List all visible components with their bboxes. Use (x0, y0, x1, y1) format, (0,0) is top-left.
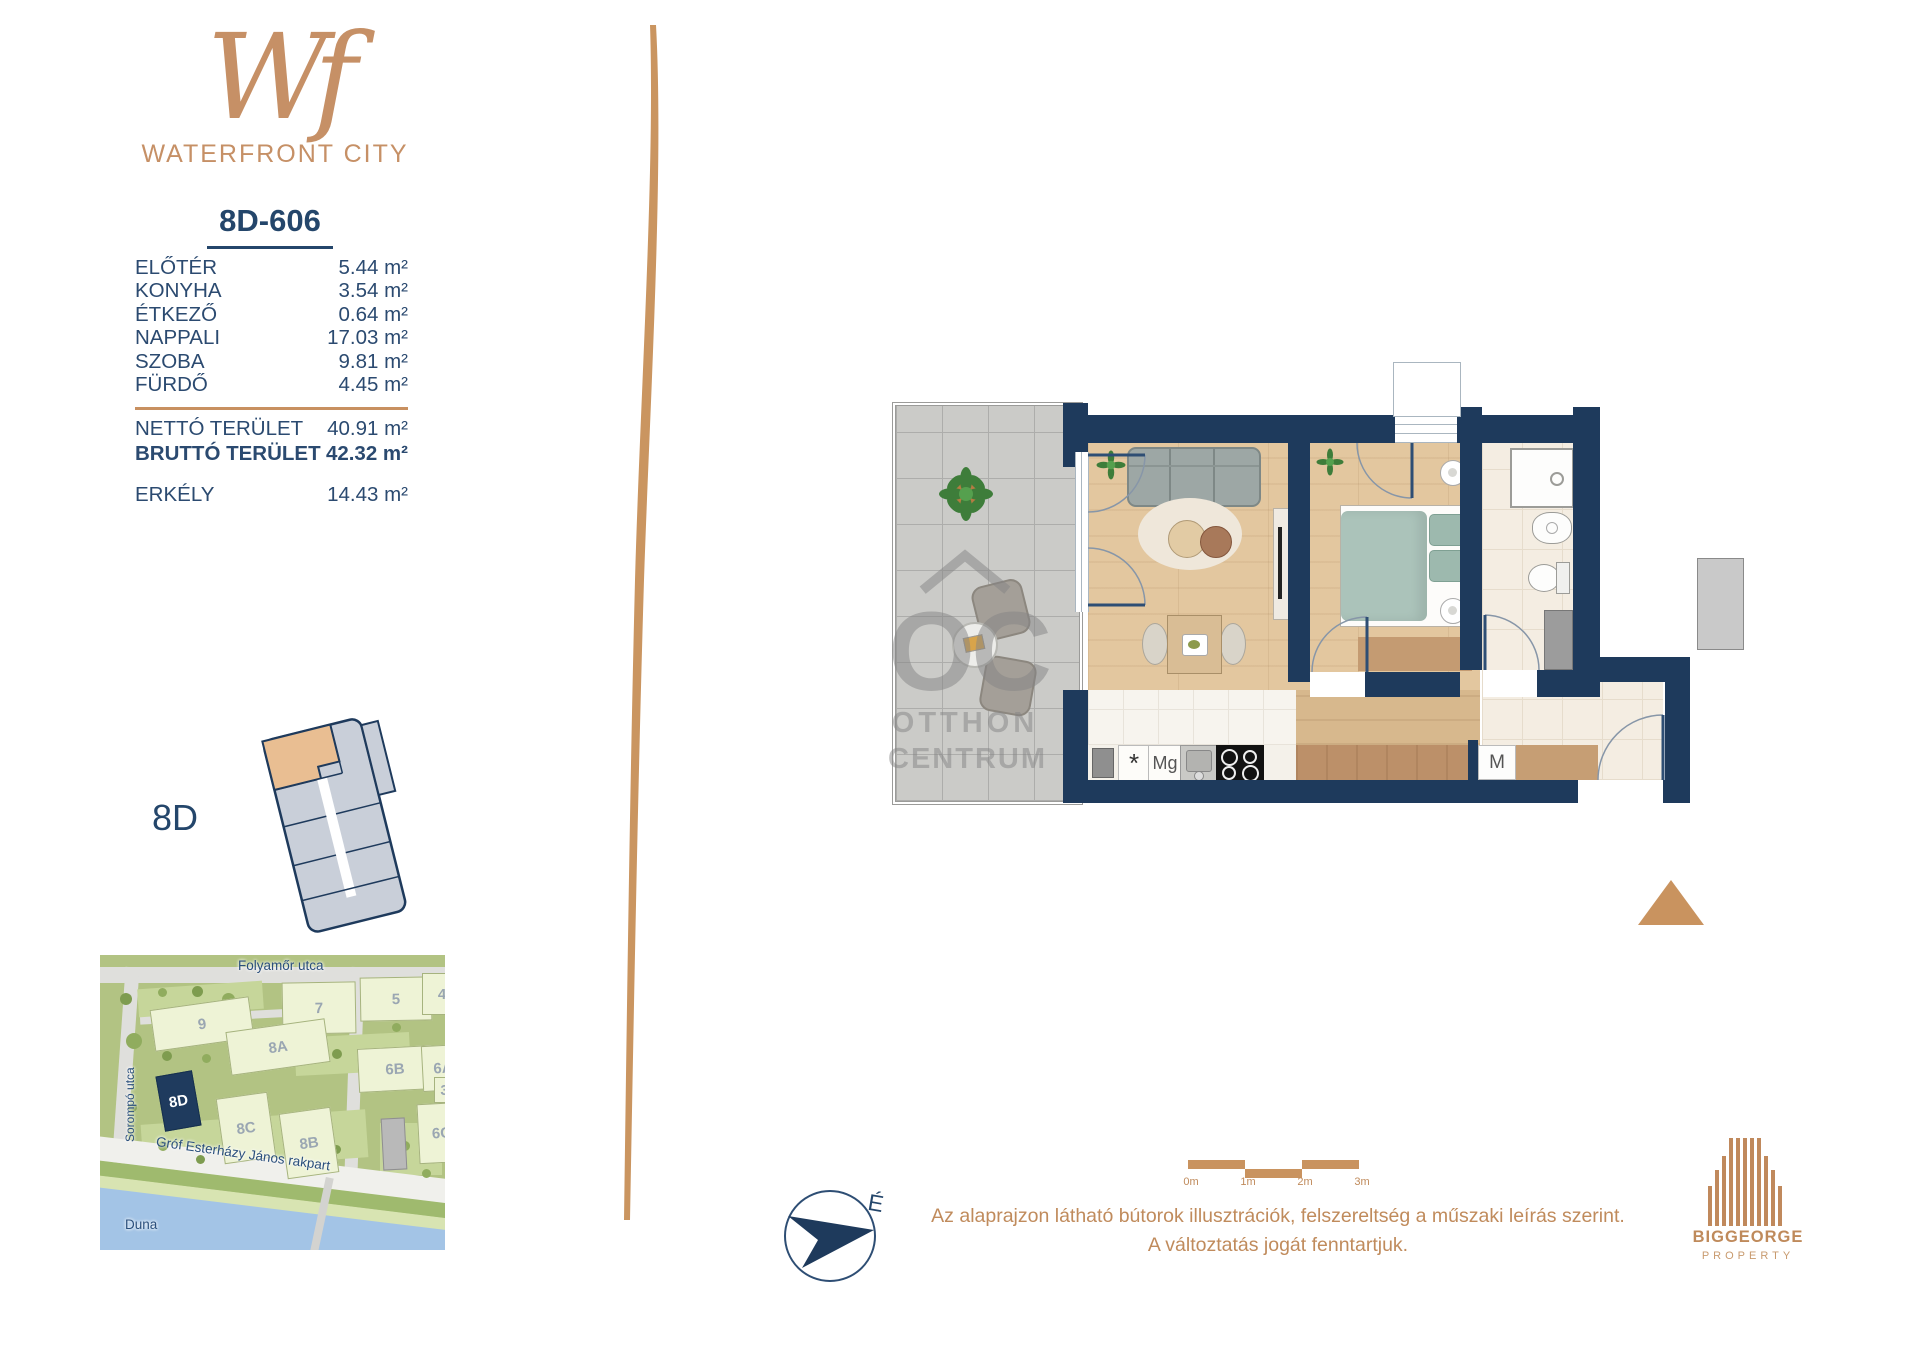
cooktop (1216, 745, 1264, 780)
dining-table (1167, 615, 1222, 674)
room-area: 0.64 m² (339, 303, 409, 327)
scale-bar: 0m 1m 2m 3m (1188, 1160, 1364, 1196)
wall-stub (1468, 740, 1478, 780)
gross-label: BRUTTÓ TERÜLET (135, 442, 321, 466)
balcony-row: ERKÉLY 14.43 m² (135, 483, 408, 506)
summary-divider (135, 407, 408, 410)
otthon-centrum-watermark: OC OTTHON CENTRUM (888, 545, 1042, 776)
biggeorge-building-icon (1702, 1128, 1794, 1228)
room-row: NAPPALI 17.03 m² (135, 326, 408, 349)
bedroom-window (1395, 415, 1457, 443)
net-area-row: NETTÓ TERÜLET 40.91 m² (135, 417, 408, 440)
wall-bottom (1063, 780, 1578, 803)
scale-tick: 2m (1291, 1176, 1319, 1188)
balcony-value: 14.43 m² (327, 483, 408, 507)
room-area: 17.03 m² (327, 326, 408, 350)
bathroom-sink (1532, 512, 1572, 544)
hall-counter (1516, 745, 1598, 780)
floor-hall (1296, 690, 1480, 745)
wall-bedroom-bottom (1365, 672, 1460, 697)
kitchen-sink (1180, 745, 1218, 782)
room-label: SZOBA (135, 350, 205, 374)
plant-icon (938, 466, 994, 522)
room-label: ELŐTÉR (135, 256, 217, 280)
floorplan-datasheet: Wf WATERFRONT CITY 8D-606 ELŐTÉR 5.44 m²… (0, 0, 1920, 1357)
scale-tick: 3m (1348, 1176, 1376, 1188)
net-value: 40.91 m² (327, 417, 408, 441)
disclaimer: Az alaprajzon látható bútorok illusztrác… (898, 1202, 1658, 1260)
street-top: Folyamőr utca (238, 958, 408, 973)
terrace-sliding-door (1075, 452, 1089, 612)
room-row: SZOBA 9.81 m² (135, 350, 408, 373)
shower (1510, 448, 1574, 508)
room-label: NAPPALI (135, 326, 220, 350)
site-map: 9 7 5 4 8A 6B 6A 8D 8C 8B 6C 3C Folyamőr… (100, 955, 445, 1250)
floor-kitchen (1088, 690, 1296, 745)
room-area: 5.44 m² (339, 256, 409, 280)
wall-bath-bottom (1537, 670, 1600, 697)
plant-icon (1096, 450, 1126, 480)
wardrobe (1358, 637, 1472, 671)
compass-north-label: É (866, 1189, 886, 1218)
watermark-line1: OTTHON (888, 707, 1042, 740)
building-label: 8D (152, 797, 198, 839)
room-row: ÉTKEZŐ 0.64 m² (135, 303, 408, 326)
room-label: FÜRDŐ (135, 373, 208, 397)
map-block: 6C (416, 1102, 445, 1164)
dining-chair (1220, 623, 1246, 665)
room-area: 4.45 m² (339, 373, 409, 397)
kitchen-counter (1296, 745, 1474, 780)
ribbon-divider (600, 20, 680, 1230)
room-row: FÜRDŐ 4.45 m² (135, 373, 408, 396)
room-row: KONYHA 3.54 m² (135, 279, 408, 302)
building-outline-plan (260, 710, 430, 945)
side-table (1200, 526, 1232, 558)
scale-tick: 1m (1234, 1176, 1262, 1188)
gross-area-row: BRUTTÓ TERÜLET 42.32 m² (135, 442, 408, 465)
room-row: ELŐTÉR 5.44 m² (135, 256, 408, 279)
tv-unit (1273, 508, 1289, 620)
developer-tagline: PROPERTY (1683, 1250, 1813, 1262)
brand-monogram: Wf (185, 8, 365, 146)
wall-living-bedroom (1288, 443, 1310, 682)
brand-name: WATERFRONT CITY (135, 140, 415, 169)
balcony-label: ERKÉLY (135, 483, 214, 507)
bedroom-window-leaf (1393, 362, 1461, 417)
wall-bottom-corner (1663, 780, 1690, 803)
map-block: 4 (422, 973, 445, 1015)
wall-left-bottom (1063, 690, 1088, 803)
watermark-line2: CENTRUM (888, 743, 1042, 776)
shaft (1544, 610, 1573, 670)
kitchen-shaft (1092, 748, 1114, 778)
room-label: KONYHA (135, 279, 222, 303)
dining-chair (1142, 623, 1168, 665)
wall-top-left (1063, 415, 1395, 443)
unit-id-wrap: 8D-606 (150, 203, 390, 249)
wall-extension-top (1600, 657, 1665, 682)
street-left: Sorompó utca (123, 1032, 137, 1142)
developer-logo: BIGGEORGE PROPERTY (1683, 1128, 1813, 1262)
room-area: 9.81 m² (339, 350, 409, 374)
map-grey-building (381, 1117, 408, 1170)
house-icon (915, 545, 1015, 595)
watermark-monogram: OC (888, 600, 1042, 703)
developer-name: BIGGEORGE (1683, 1228, 1813, 1247)
room-area: 3.54 m² (339, 279, 409, 303)
compass-icon (778, 1186, 882, 1290)
fridge: * (1118, 745, 1150, 782)
wall-bedroom-bath (1460, 407, 1482, 670)
external-landing (1697, 558, 1744, 650)
net-label: NETTÓ TERÜLET (135, 417, 303, 441)
wall-right-bath (1573, 407, 1600, 670)
plant-icon (1316, 448, 1344, 476)
disclaimer-line2: A változtatás jogát fenntartjuk. (898, 1231, 1658, 1260)
washing-machine: M (1478, 745, 1516, 780)
map-block: 3C (434, 1077, 445, 1103)
disclaimer-line1: Az alaprajzon látható bútorok illusztrác… (898, 1202, 1658, 1231)
room-label: ÉTKEZŐ (135, 303, 217, 327)
gross-value: 42.32 m² (326, 442, 408, 466)
unit-id: 8D-606 (207, 203, 333, 249)
north-triangle (1638, 880, 1704, 925)
scale-tick: 0m (1177, 1176, 1205, 1188)
river-label: Duna (125, 1217, 157, 1232)
microwave: Mg (1148, 745, 1182, 782)
